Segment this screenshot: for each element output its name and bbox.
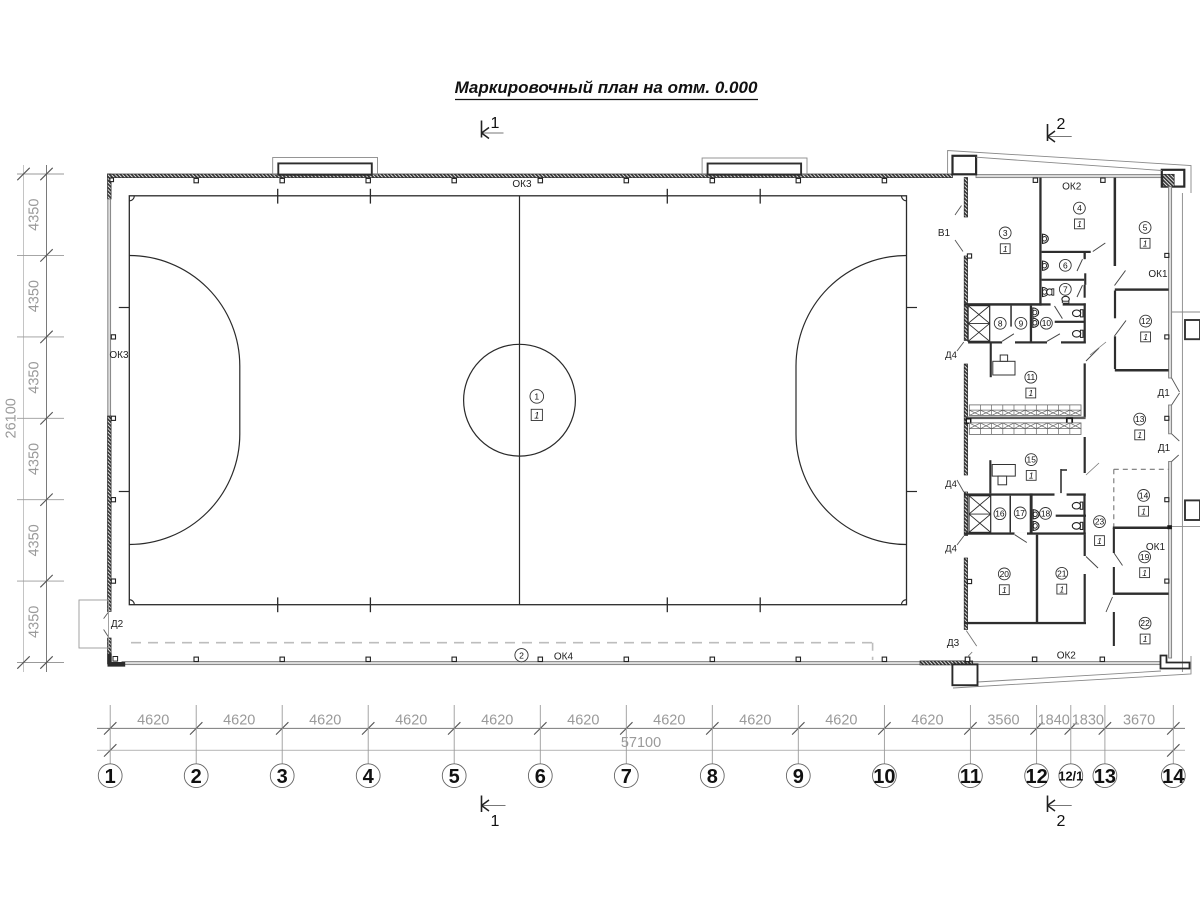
svg-text:ОК3: ОК3 — [109, 350, 129, 361]
svg-text:11: 11 — [1026, 372, 1035, 382]
svg-text:4350: 4350 — [27, 280, 43, 312]
svg-text:Д1: Д1 — [1158, 388, 1171, 399]
svg-text:16: 16 — [995, 509, 1005, 519]
svg-text:1: 1 — [491, 813, 500, 830]
svg-text:7: 7 — [1063, 284, 1068, 294]
svg-text:3: 3 — [277, 766, 288, 788]
svg-text:3670: 3670 — [1123, 713, 1155, 729]
svg-text:В1: В1 — [938, 228, 951, 239]
svg-text:13: 13 — [1135, 414, 1145, 424]
svg-text:4620: 4620 — [223, 713, 255, 729]
svg-text:4620: 4620 — [137, 713, 169, 729]
svg-text:14: 14 — [1162, 766, 1185, 788]
svg-text:1: 1 — [1059, 584, 1064, 594]
svg-text:Д2: Д2 — [111, 619, 124, 630]
svg-text:5: 5 — [1143, 223, 1148, 233]
svg-text:12: 12 — [1025, 766, 1047, 788]
svg-text:4350: 4350 — [27, 443, 43, 475]
svg-text:Д4: Д4 — [945, 350, 957, 361]
svg-text:ОК3: ОК3 — [512, 179, 532, 190]
svg-text:1: 1 — [1143, 332, 1148, 342]
svg-text:4350: 4350 — [27, 199, 43, 231]
svg-text:5: 5 — [449, 766, 460, 788]
svg-text:3560: 3560 — [987, 713, 1019, 729]
svg-text:9: 9 — [793, 766, 804, 788]
svg-text:1840: 1840 — [1038, 713, 1070, 729]
svg-text:9: 9 — [1019, 318, 1024, 328]
svg-text:57100: 57100 — [621, 735, 661, 751]
svg-text:20: 20 — [1000, 569, 1010, 579]
svg-text:2: 2 — [519, 650, 524, 660]
svg-text:ОК2: ОК2 — [1057, 650, 1077, 661]
svg-text:2: 2 — [1057, 116, 1066, 133]
svg-text:1: 1 — [534, 392, 539, 402]
svg-text:8: 8 — [998, 318, 1003, 328]
svg-text:4350: 4350 — [27, 524, 43, 556]
svg-text:4620: 4620 — [567, 713, 599, 729]
svg-text:18: 18 — [1041, 508, 1051, 518]
svg-text:1: 1 — [1003, 244, 1008, 254]
svg-text:4620: 4620 — [481, 713, 513, 729]
svg-text:8: 8 — [707, 766, 718, 788]
svg-text:1: 1 — [1143, 239, 1148, 249]
svg-text:4620: 4620 — [653, 713, 685, 729]
svg-text:23: 23 — [1095, 517, 1105, 527]
svg-text:1: 1 — [1097, 536, 1102, 546]
svg-text:Д4: Д4 — [945, 544, 957, 555]
svg-text:10: 10 — [873, 766, 895, 788]
svg-text:17: 17 — [1016, 508, 1026, 518]
svg-text:26100: 26100 — [4, 398, 20, 438]
svg-text:4350: 4350 — [27, 361, 43, 393]
svg-text:Д4: Д4 — [945, 479, 957, 490]
svg-text:1: 1 — [491, 115, 500, 132]
svg-text:4350: 4350 — [27, 606, 43, 638]
svg-text:4: 4 — [363, 766, 375, 788]
svg-text:4: 4 — [1077, 203, 1082, 213]
svg-text:10: 10 — [1042, 318, 1052, 328]
svg-text:1: 1 — [105, 766, 116, 788]
svg-text:Маркировочный план на отм. 0.0: Маркировочный план на отм. 0.000 — [455, 78, 758, 97]
svg-text:1: 1 — [1029, 471, 1034, 481]
svg-text:19: 19 — [1140, 552, 1150, 562]
svg-text:1830: 1830 — [1072, 713, 1104, 729]
svg-text:4620: 4620 — [911, 713, 943, 729]
svg-text:Д1: Д1 — [1158, 443, 1171, 454]
svg-text:ОК4: ОК4 — [554, 652, 574, 663]
svg-text:21: 21 — [1057, 568, 1067, 578]
svg-text:1: 1 — [534, 410, 539, 420]
svg-text:6: 6 — [535, 766, 546, 788]
svg-text:3: 3 — [1003, 228, 1008, 238]
svg-text:2: 2 — [191, 766, 202, 788]
svg-text:15: 15 — [1027, 455, 1037, 465]
svg-text:11: 11 — [960, 766, 981, 788]
svg-text:ОК1: ОК1 — [1146, 542, 1166, 553]
svg-text:1: 1 — [1028, 388, 1033, 398]
svg-text:1: 1 — [1137, 430, 1142, 440]
svg-text:1: 1 — [1143, 634, 1148, 644]
svg-text:22: 22 — [1140, 618, 1150, 628]
svg-text:4620: 4620 — [309, 713, 341, 729]
svg-text:Д3: Д3 — [947, 638, 960, 649]
svg-text:1: 1 — [1142, 568, 1147, 578]
svg-text:13: 13 — [1094, 766, 1116, 788]
svg-text:6: 6 — [1063, 260, 1068, 270]
svg-text:1: 1 — [1002, 585, 1007, 595]
svg-text:12: 12 — [1141, 316, 1151, 326]
svg-text:12/1: 12/1 — [1058, 768, 1083, 783]
svg-text:4620: 4620 — [395, 713, 427, 729]
svg-text:1: 1 — [1141, 506, 1146, 516]
svg-text:4620: 4620 — [739, 713, 771, 729]
svg-text:7: 7 — [621, 766, 632, 788]
svg-text:ОК2: ОК2 — [1062, 182, 1082, 193]
svg-text:ОК1: ОК1 — [1148, 269, 1168, 280]
svg-text:1: 1 — [1077, 219, 1082, 229]
svg-text:2: 2 — [1057, 813, 1066, 830]
svg-text:14: 14 — [1139, 490, 1149, 500]
svg-text:4620: 4620 — [825, 713, 857, 729]
